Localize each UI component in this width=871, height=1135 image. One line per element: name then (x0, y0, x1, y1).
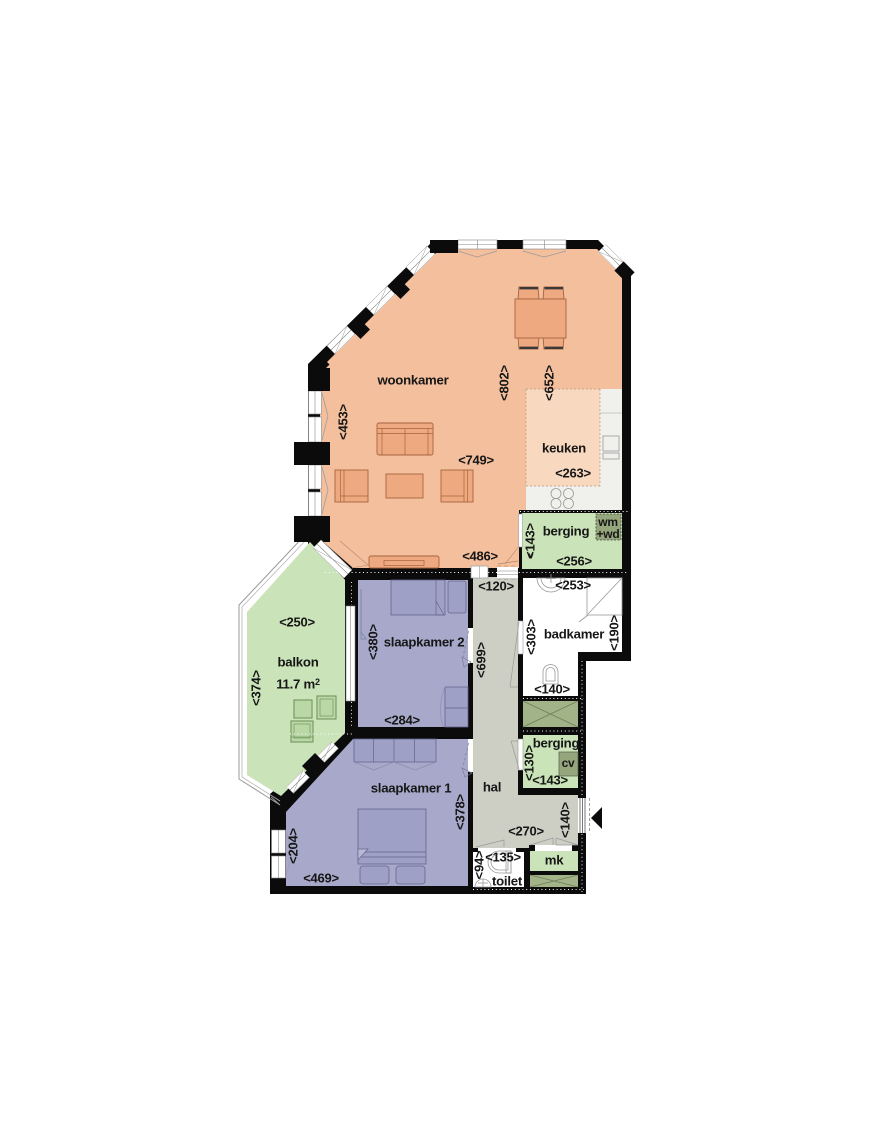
svg-text:<94>: <94> (471, 850, 486, 879)
svg-text:<802>: <802> (496, 365, 511, 401)
svg-text:<135>: <135> (485, 849, 521, 864)
svg-text:balkon: balkon (278, 654, 319, 669)
svg-text:<749>: <749> (458, 452, 494, 467)
svg-text:<284>: <284> (384, 712, 420, 727)
svg-text:<120>: <120> (478, 578, 514, 593)
svg-text:<699>: <699> (473, 642, 488, 678)
svg-text:<453>: <453> (335, 404, 350, 440)
svg-text:<469>: <469> (303, 870, 339, 885)
svg-text:hal: hal (483, 779, 501, 794)
svg-text:berging: berging (533, 735, 580, 750)
svg-text:+wd: +wd (597, 527, 620, 541)
svg-text:toilet: toilet (492, 873, 523, 888)
svg-text:<190>: <190> (606, 615, 621, 651)
svg-text:<374>: <374> (248, 670, 263, 706)
svg-text:<143>: <143> (522, 523, 537, 559)
svg-text:woonkamer: woonkamer (376, 372, 448, 387)
svg-text:<140>: <140> (557, 802, 572, 838)
svg-text:<253>: <253> (555, 577, 591, 592)
svg-text:<204>: <204> (285, 828, 300, 864)
svg-text:<263>: <263> (555, 465, 591, 480)
svg-text:mk: mk (545, 852, 564, 867)
svg-text:<250>: <250> (279, 614, 315, 629)
svg-text:<270>: <270> (508, 823, 544, 838)
svg-text:<143>: <143> (532, 772, 568, 787)
svg-text:<652>: <652> (541, 365, 556, 401)
svg-text:slaapkamer 1: slaapkamer 1 (371, 780, 452, 795)
svg-text:berging: berging (543, 523, 590, 538)
svg-text:<140>: <140> (534, 681, 570, 696)
svg-text:<486>: <486> (462, 548, 498, 563)
svg-text:keuken: keuken (542, 440, 586, 455)
svg-text:<256>: <256> (556, 553, 592, 568)
svg-text:cv: cv (562, 756, 575, 770)
svg-text:<378>: <378> (452, 794, 467, 830)
svg-text:<303>: <303> (523, 619, 538, 655)
svg-text:badkamer: badkamer (544, 626, 604, 641)
svg-text:slaapkamer 2: slaapkamer 2 (384, 634, 465, 649)
svg-text:11.7 m2: 11.7 m2 (276, 676, 320, 691)
svg-text:<380>: <380> (365, 624, 380, 660)
